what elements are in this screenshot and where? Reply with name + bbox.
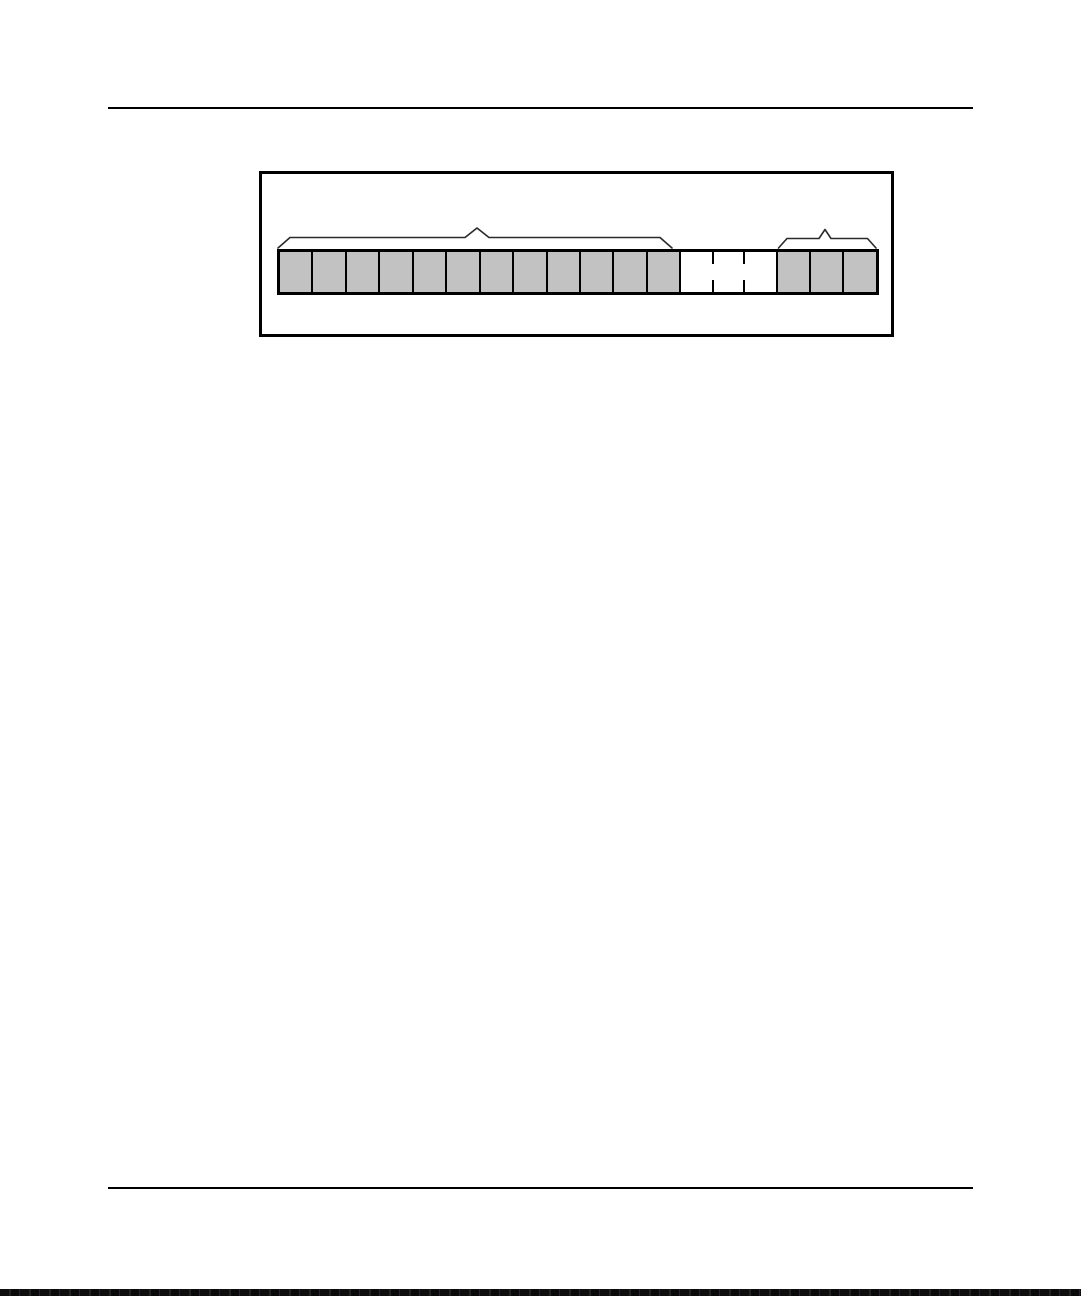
shaded-cell [512, 252, 545, 292]
shaded-cell [412, 252, 445, 292]
shaded-cell [378, 252, 411, 292]
shaded-cell [612, 252, 645, 292]
shaded-cell [546, 252, 579, 292]
shaded-cell [345, 252, 378, 292]
shaded-cell [776, 252, 809, 292]
empty-cell [679, 252, 712, 292]
shaded-cell [646, 252, 679, 292]
shaded-cell [579, 252, 612, 292]
shaded-cell [842, 252, 875, 292]
document-page [0, 0, 1081, 1297]
shaded-cell [445, 252, 478, 292]
shaded-cell [809, 252, 842, 292]
shaded-cell [311, 252, 344, 292]
empty-cell [744, 252, 775, 292]
empty-cell [713, 252, 744, 292]
bit-cell-row [277, 249, 879, 295]
header-rule [108, 107, 973, 109]
footer-rule [108, 1187, 973, 1189]
scan-edge-artifact [0, 1289, 1081, 1296]
shaded-cell [479, 252, 512, 292]
shaded-cell [280, 252, 311, 292]
